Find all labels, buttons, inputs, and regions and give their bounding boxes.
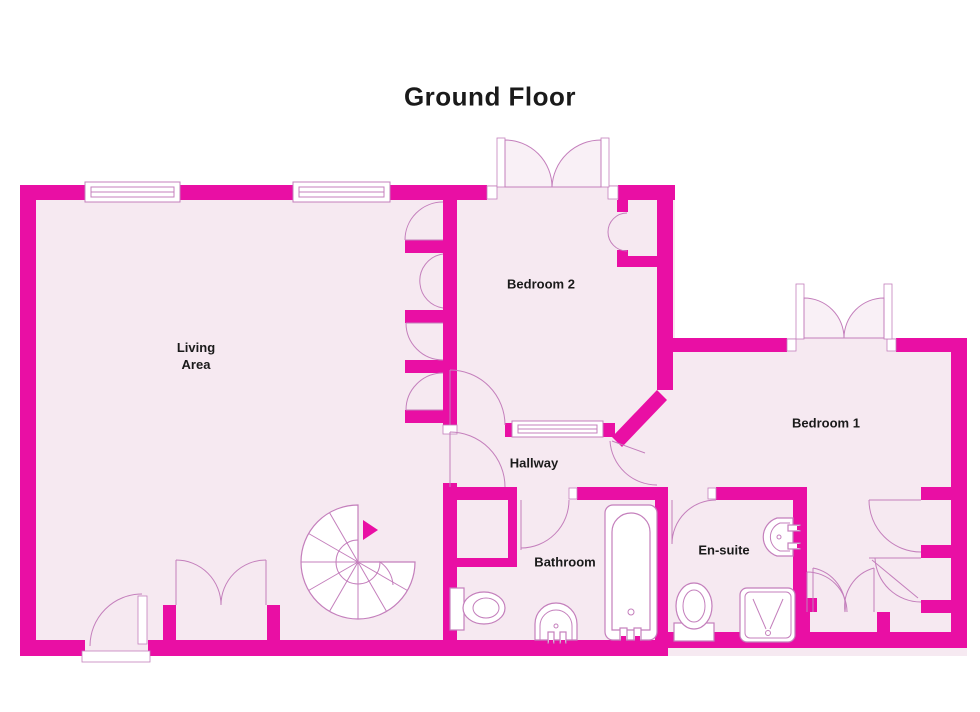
window-bedroom2-internal (512, 421, 603, 437)
room-label-hallway: Hallway (510, 456, 558, 473)
wall-right (951, 338, 967, 648)
shower-icon (740, 588, 795, 642)
stub-closet-2 (405, 310, 443, 323)
wall-bedroom2-right (657, 200, 673, 390)
jamb (887, 339, 896, 351)
wall-top-bedroom2-right (618, 185, 675, 200)
jamb (487, 186, 497, 199)
stub-wardrobe-1 (921, 487, 951, 500)
wall-closet-right (508, 500, 517, 567)
stub-bedroom1-door-right (877, 612, 890, 632)
stub-closet-4 (405, 410, 443, 423)
wall-ensuite-top (716, 487, 807, 500)
wall-bottom-mid (148, 640, 668, 656)
room-label-living-area: Living Area (177, 340, 215, 374)
ensuite-toilet-icon (674, 583, 714, 641)
jamb (569, 488, 577, 499)
stub-wardrobe-3 (921, 600, 951, 613)
page-title: Ground Floor (404, 82, 576, 113)
block-bedroom2-bottom-right (603, 423, 615, 437)
room-label-bedroom2: Bedroom 2 (507, 277, 575, 294)
jamb (787, 339, 796, 351)
floor-plan-page: Ground Floor Living Area Bedroom 2 Bedro… (0, 0, 980, 712)
wall-bathroom-top-right (577, 487, 668, 500)
jamb (708, 488, 716, 499)
window-living-2 (293, 182, 390, 202)
stub-closet-1 (405, 240, 443, 253)
stub-bedroom1-door-left (797, 612, 810, 632)
room-label-bathroom: Bathroom (534, 555, 595, 572)
stub-wardrobe-2 (921, 545, 951, 558)
wall-bottom-left (20, 640, 85, 656)
entrance-threshold (82, 651, 150, 662)
bedroom1-french-doors (796, 284, 892, 339)
wall-bedroom1-top-left (657, 338, 787, 352)
stub-ensuite-right (807, 598, 817, 612)
wall-left (20, 185, 36, 656)
window-living-1 (85, 182, 180, 202)
wall-alcove-connector (617, 256, 673, 267)
stub-patio-left (163, 605, 176, 640)
stub-alcove-top (617, 200, 628, 212)
wall-closet-bottom (443, 558, 517, 567)
jamb (608, 186, 618, 199)
stub-patio-right (267, 605, 280, 640)
pedestal-sink-icon (535, 603, 577, 644)
bathtub-icon (605, 505, 657, 641)
room-label-bedroom1: Bedroom 1 (792, 416, 860, 433)
stub-closet-3 (405, 360, 443, 373)
room-label-ensuite: En-suite (698, 543, 749, 560)
bedroom2-french-doors (497, 138, 609, 187)
